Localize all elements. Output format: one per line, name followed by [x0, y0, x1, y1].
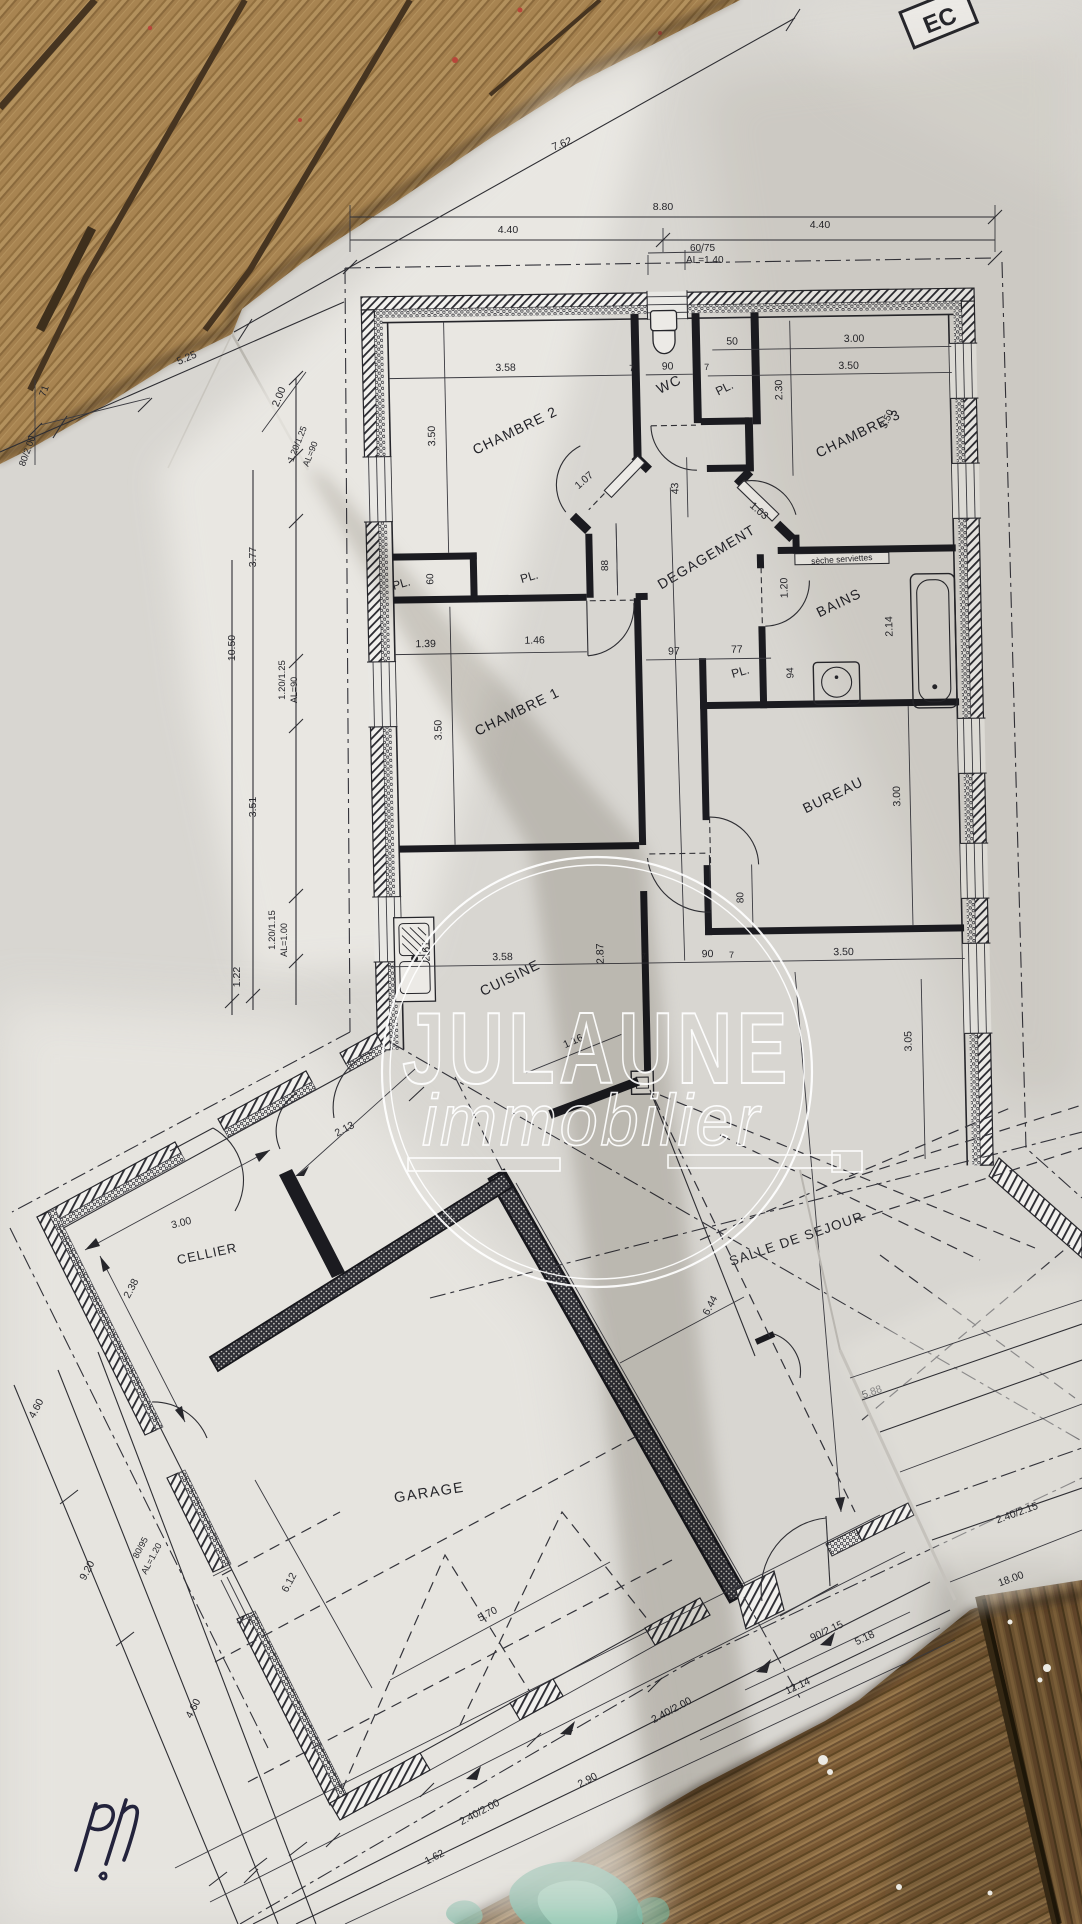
- svg-text:97: 97: [668, 645, 680, 657]
- svg-text:3.58: 3.58: [495, 362, 516, 374]
- svg-text:50: 50: [726, 336, 738, 348]
- svg-text:60: 60: [425, 573, 436, 585]
- svg-text:8.80: 8.80: [653, 201, 674, 213]
- svg-text:77: 77: [731, 644, 743, 656]
- svg-text:80: 80: [735, 892, 746, 904]
- svg-text:AL=1.40: AL=1.40: [686, 255, 724, 266]
- svg-text:4.40: 4.40: [498, 224, 519, 236]
- svg-text:1.22: 1.22: [231, 967, 243, 988]
- svg-text:3.51: 3.51: [247, 797, 259, 818]
- svg-text:3.50: 3.50: [426, 426, 438, 447]
- svg-text:88: 88: [600, 559, 611, 571]
- svg-text:1.20: 1.20: [778, 577, 790, 598]
- svg-text:2.61: 2.61: [420, 941, 432, 962]
- svg-text:43: 43: [669, 482, 681, 494]
- svg-text:3.58: 3.58: [492, 951, 513, 963]
- svg-text:3.50: 3.50: [432, 720, 444, 741]
- svg-text:1.46: 1.46: [524, 634, 545, 646]
- svg-text:AL=1.00: AL=1.00: [279, 923, 289, 957]
- svg-text:10.50: 10.50: [226, 635, 238, 661]
- svg-text:3.50: 3.50: [833, 946, 854, 958]
- svg-text:1.20/1.25: 1.20/1.25: [277, 660, 288, 700]
- svg-text:90: 90: [702, 948, 714, 960]
- svg-text:immobilier: immobilier: [422, 1079, 762, 1160]
- svg-text:94: 94: [785, 667, 796, 679]
- svg-text:7: 7: [704, 362, 709, 372]
- svg-text:1.20/1.15: 1.20/1.15: [267, 910, 278, 950]
- svg-text:3.05: 3.05: [902, 1031, 914, 1052]
- svg-text:7: 7: [629, 363, 634, 373]
- svg-text:90: 90: [662, 360, 674, 372]
- svg-text:7: 7: [729, 950, 734, 960]
- svg-text:3.77: 3.77: [247, 547, 259, 568]
- svg-text:AL=90: AL=90: [289, 677, 299, 703]
